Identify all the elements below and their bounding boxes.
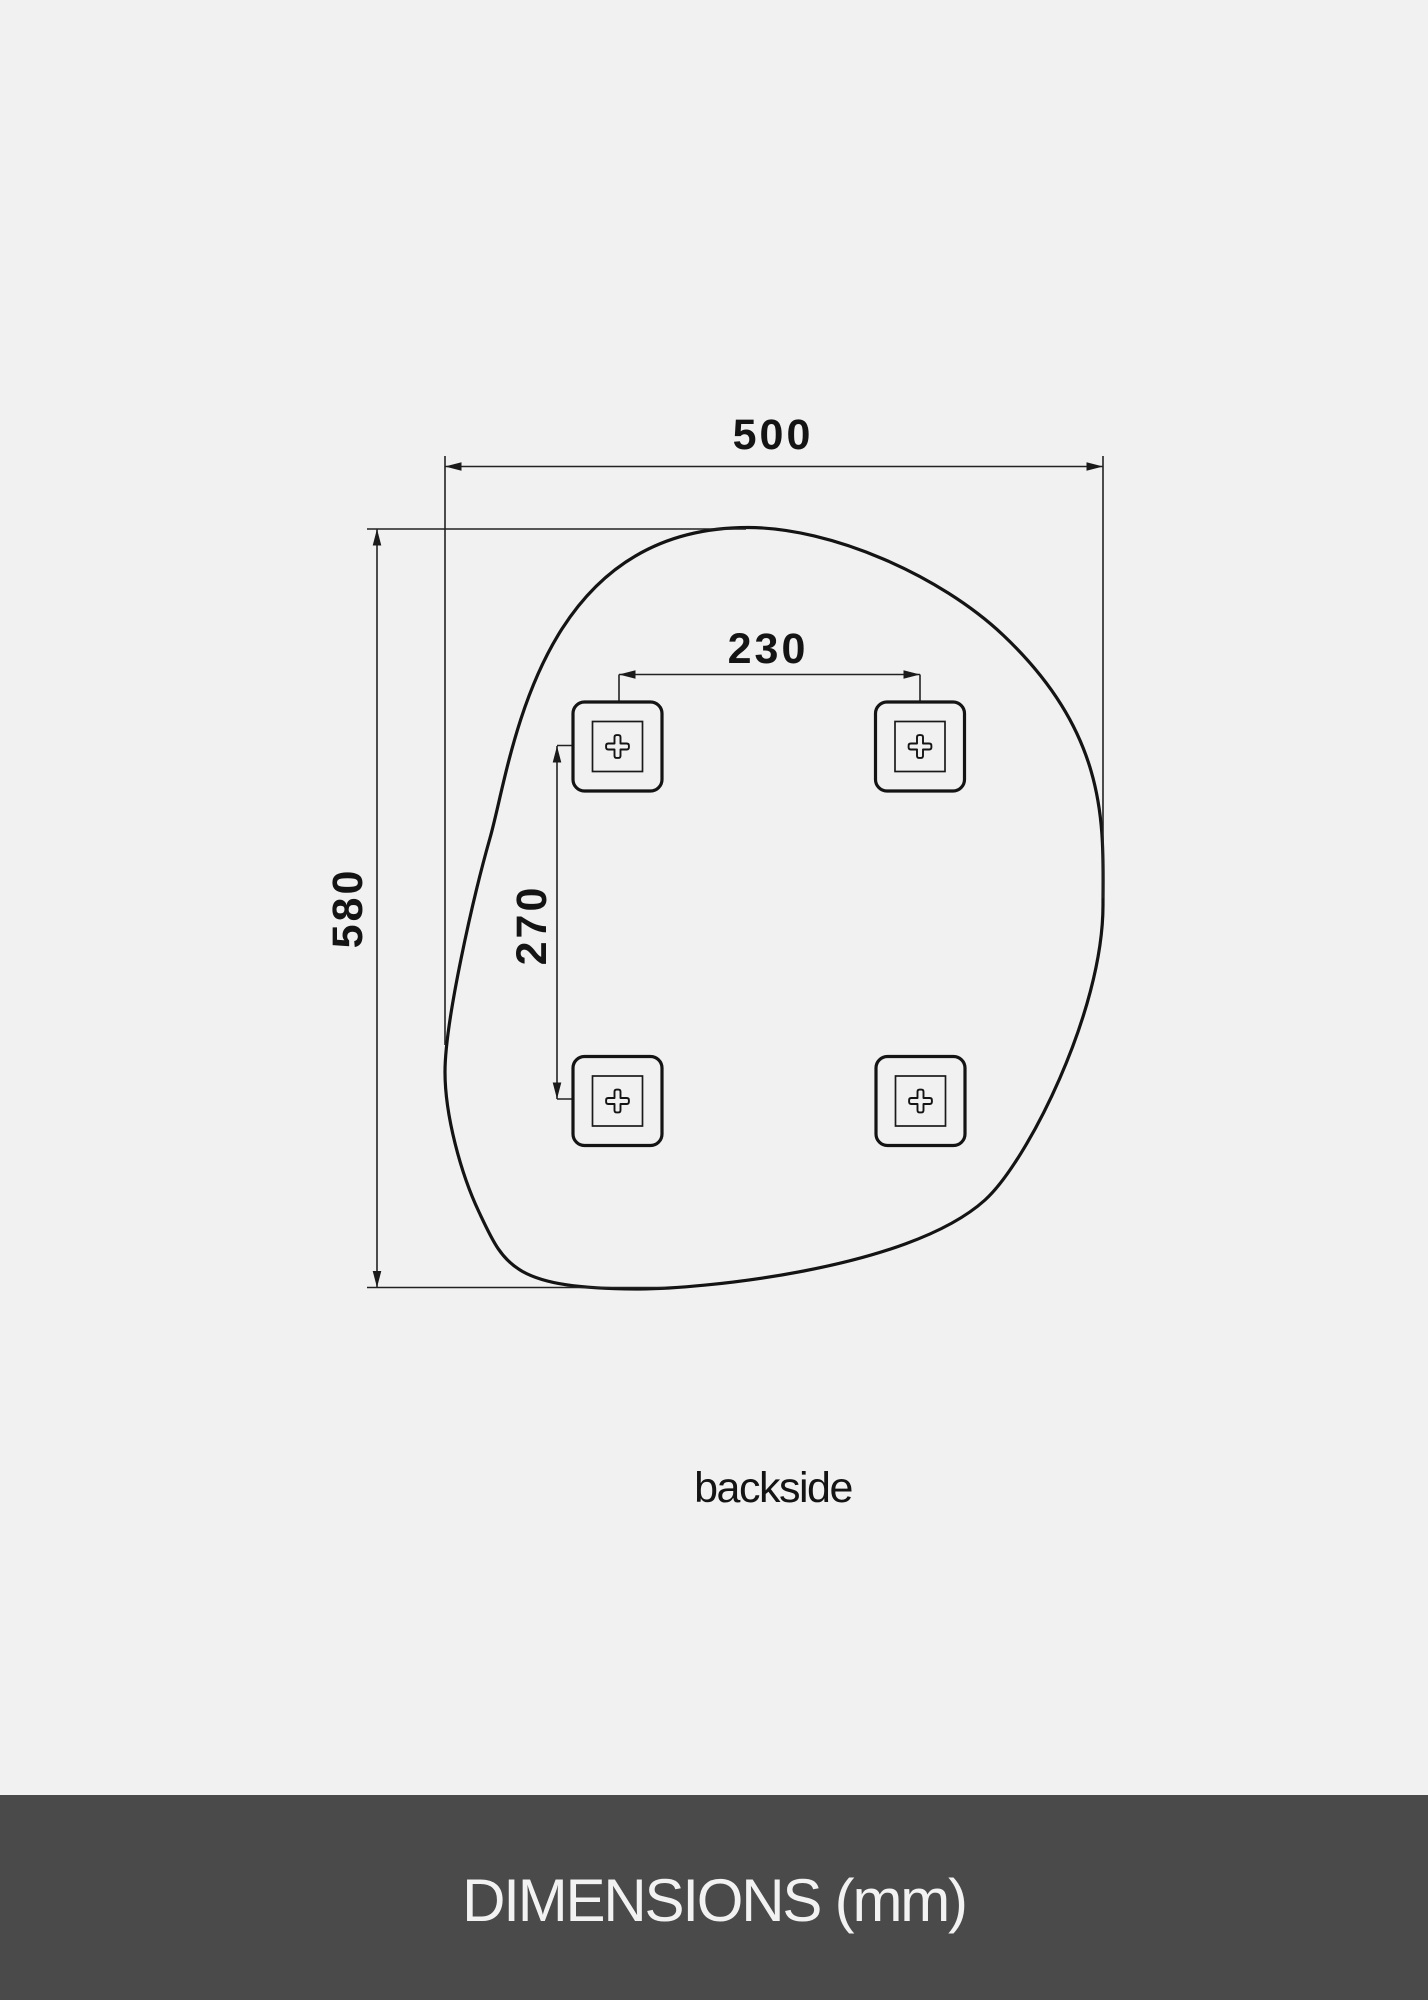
svg-text:backside: backside	[694, 1464, 852, 1512]
svg-text:DIMENSIONS (mm): DIMENSIONS (mm)	[462, 1867, 966, 1934]
svg-text:500: 500	[733, 411, 814, 459]
svg-text:580: 580	[324, 868, 372, 949]
svg-text:230: 230	[728, 625, 809, 673]
svg-text:270: 270	[508, 885, 556, 966]
